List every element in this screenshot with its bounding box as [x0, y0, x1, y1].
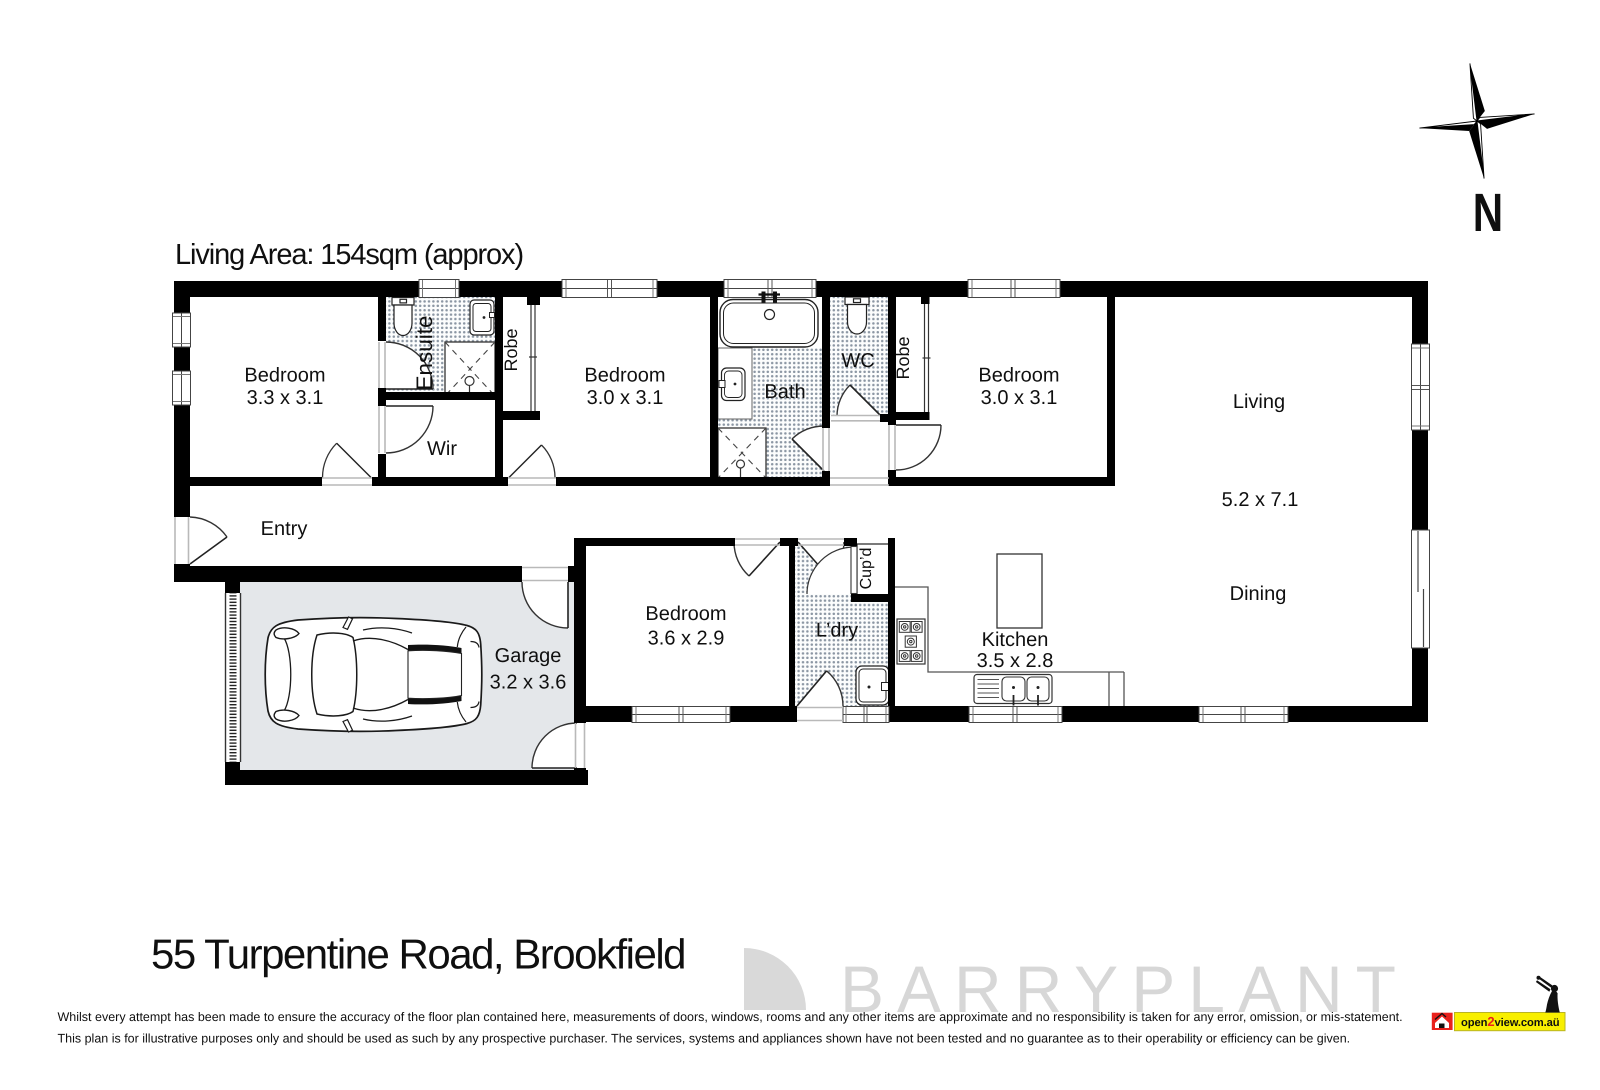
svg-text:This plan is for illustrative: This plan is for illustrative purposes o… — [58, 1032, 1351, 1046]
svg-text:Robe: Robe — [893, 336, 913, 379]
svg-text:Bedroom: Bedroom — [978, 365, 1059, 387]
svg-text:Entry: Entry — [261, 518, 308, 540]
svg-text:Ensuite: Ensuite — [412, 315, 437, 390]
svg-text:WC: WC — [841, 350, 874, 372]
svg-text:Cup’d: Cup’d — [858, 548, 875, 590]
svg-text:3.0 x 3.1: 3.0 x 3.1 — [587, 387, 664, 409]
svg-text:3.3 x 3.1: 3.3 x 3.1 — [247, 387, 324, 409]
svg-text:3.2 x 3.6: 3.2 x 3.6 — [490, 672, 567, 694]
svg-text:3.0 x 3.1: 3.0 x 3.1 — [981, 387, 1058, 409]
svg-text:Bedroom: Bedroom — [584, 365, 665, 387]
svg-text:Wir: Wir — [427, 438, 457, 460]
svg-text:N: N — [1473, 183, 1503, 243]
svg-text:Living Area: 154sqm (approx): Living Area: 154sqm (approx) — [175, 239, 523, 271]
svg-text:Whilst every attempt has been: Whilst every attempt has been made to en… — [58, 1010, 1403, 1024]
svg-text:open2view.com.aü: open2view.com.aü — [1461, 1014, 1560, 1029]
svg-text:L’dry: L’dry — [816, 620, 858, 642]
svg-text:Kitchen: Kitchen — [982, 629, 1049, 651]
svg-text:Robe: Robe — [501, 328, 521, 371]
svg-text:3.6 x 2.9: 3.6 x 2.9 — [648, 628, 725, 650]
svg-text:Garage: Garage — [495, 645, 562, 667]
svg-text:55 Turpentine Road, Brookfield: 55 Turpentine Road, Brookfield — [151, 931, 685, 978]
svg-text:Bedroom: Bedroom — [244, 365, 325, 387]
svg-text:Bedroom: Bedroom — [645, 603, 726, 625]
svg-text:3.5 x 2.8: 3.5 x 2.8 — [977, 650, 1054, 672]
svg-text:5.2 x 7.1: 5.2 x 7.1 — [1222, 489, 1299, 511]
svg-text:Dining: Dining — [1230, 583, 1287, 605]
svg-text:Living: Living — [1233, 391, 1285, 413]
svg-text:Bath: Bath — [764, 381, 805, 403]
